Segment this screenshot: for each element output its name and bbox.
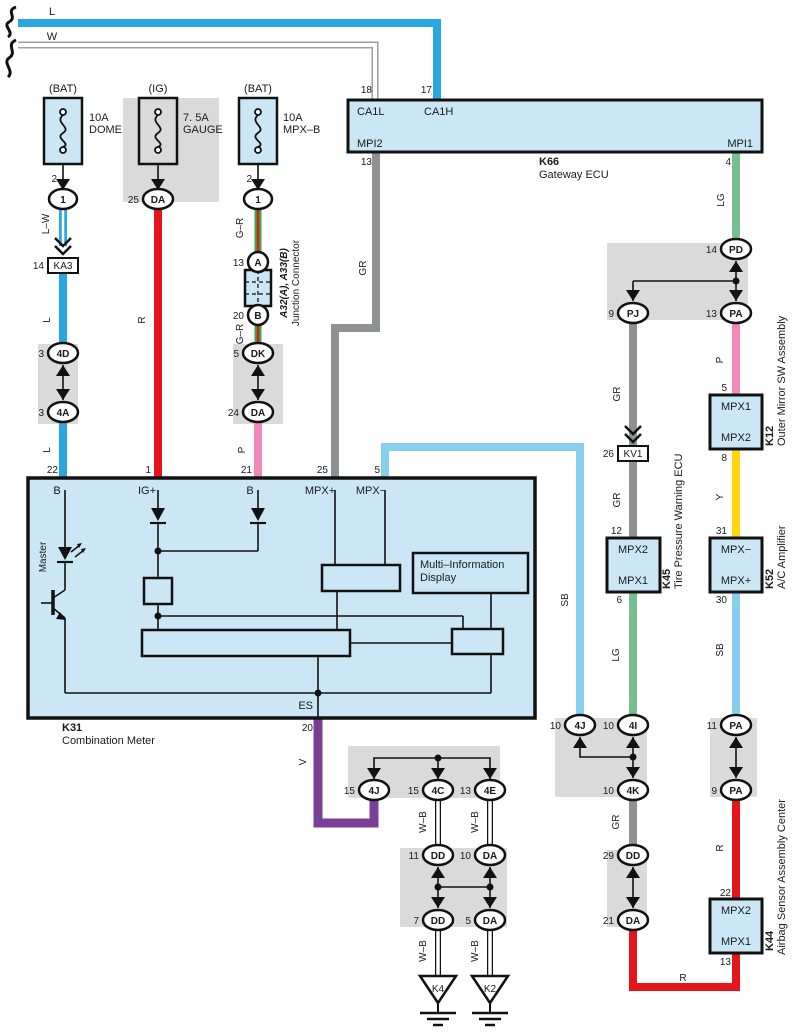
svg-text:4D: 4D bbox=[57, 349, 70, 360]
svg-text:14: 14 bbox=[706, 245, 718, 256]
svg-text:20: 20 bbox=[233, 311, 245, 322]
svg-text:10: 10 bbox=[460, 851, 472, 862]
fuse-name: MPX–B bbox=[283, 124, 320, 136]
pin-number: 6 bbox=[616, 595, 622, 606]
svg-text:B: B bbox=[254, 311, 261, 322]
pin-number: 14 bbox=[33, 261, 45, 272]
ground-symbols: K4 K2 bbox=[420, 976, 508, 1025]
pin-number: 20 bbox=[302, 723, 314, 734]
component-id: K45 bbox=[661, 569, 673, 589]
ground-label: K2 bbox=[484, 984, 497, 995]
relay-code: KV1 bbox=[624, 449, 643, 460]
svg-text:10: 10 bbox=[550, 721, 562, 732]
component-id: A32(A), A33(B) bbox=[279, 248, 290, 319]
pin-label: MPX2 bbox=[721, 432, 751, 444]
svg-text:4E: 4E bbox=[484, 786, 497, 797]
wire-label: P bbox=[715, 356, 726, 363]
fuse-rating: 10A bbox=[89, 112, 109, 124]
wire-label: GR bbox=[612, 493, 623, 508]
pin-number: 17 bbox=[421, 85, 433, 96]
pin-number: 22 bbox=[720, 888, 732, 899]
wire-label: L bbox=[42, 317, 53, 323]
pin-label: MPX1 bbox=[721, 401, 751, 413]
component-id: K44 bbox=[764, 930, 776, 951]
svg-text:DD: DD bbox=[431, 916, 445, 927]
pin-number: 2 bbox=[51, 174, 57, 185]
svg-text:3: 3 bbox=[38, 408, 44, 419]
wire-GR-gateway bbox=[335, 152, 376, 479]
svg-text:DK: DK bbox=[251, 349, 266, 360]
pin-label: IG+ bbox=[138, 485, 156, 497]
fuse-mpxb-box bbox=[239, 98, 277, 164]
svg-text:4A: 4A bbox=[57, 408, 70, 419]
svg-text:4J: 4J bbox=[368, 786, 379, 797]
pin-label: MPI1 bbox=[727, 138, 753, 150]
component-id: K12 bbox=[764, 426, 776, 446]
pin-number: 21 bbox=[241, 465, 253, 476]
wire-label: W–B bbox=[470, 940, 481, 962]
svg-text:1: 1 bbox=[255, 195, 261, 206]
pin-label: B bbox=[53, 485, 60, 497]
pin-number: 2 bbox=[246, 174, 252, 185]
svg-text:4I: 4I bbox=[629, 721, 638, 732]
svg-text:7: 7 bbox=[413, 916, 419, 927]
svg-text:11: 11 bbox=[707, 721, 718, 732]
fuse-head: (BAT) bbox=[244, 83, 272, 95]
component-name: Junction Connector bbox=[291, 239, 302, 326]
component-name: Gateway ECU bbox=[539, 169, 609, 181]
pin-label: MPX2 bbox=[618, 544, 648, 556]
svg-text:15: 15 bbox=[344, 786, 356, 797]
pin-label: MPX+ bbox=[721, 575, 751, 587]
svg-text:PD: PD bbox=[729, 245, 743, 256]
svg-text:5: 5 bbox=[233, 349, 239, 360]
svg-text:9: 9 bbox=[608, 309, 614, 320]
pin-label: MPX1 bbox=[618, 575, 648, 587]
svg-text:3: 3 bbox=[38, 349, 44, 360]
fuse-dome-box bbox=[44, 98, 82, 164]
svg-text:PJ: PJ bbox=[627, 309, 639, 320]
pin-label: CA1H bbox=[424, 106, 453, 118]
wire-label: W–B bbox=[418, 940, 429, 962]
pin-number: 13 bbox=[720, 957, 732, 968]
svg-text:21: 21 bbox=[603, 916, 615, 927]
combination-meter-box bbox=[28, 478, 535, 718]
wire-label: R bbox=[715, 844, 726, 851]
wire-label: L bbox=[42, 447, 53, 453]
svg-text:9: 9 bbox=[711, 786, 717, 797]
fuse-name: GAUGE bbox=[183, 124, 223, 136]
wire-label: SB bbox=[560, 593, 571, 607]
svg-text:4C: 4C bbox=[432, 786, 445, 797]
fuse-gauge-box bbox=[139, 98, 177, 164]
fuse-head: (BAT) bbox=[49, 83, 77, 95]
wire-label: W–B bbox=[418, 811, 429, 833]
pin-number: 30 bbox=[716, 595, 728, 606]
svg-text:25: 25 bbox=[128, 195, 140, 206]
diagram-svg: K4 K2 1 DA25 1 A13 B20 4D3 4A3 DK5 DA24 … bbox=[0, 0, 796, 1032]
svg-text:10: 10 bbox=[603, 721, 615, 732]
component-name: Tire Pressure Warning ECU bbox=[673, 453, 685, 589]
fuse-head: (IG) bbox=[149, 83, 168, 95]
wire-label: Y bbox=[715, 493, 726, 500]
pin-label: MPX+ bbox=[305, 485, 335, 497]
junction-terminal: B20 bbox=[233, 305, 268, 325]
wire-label: G–R bbox=[235, 218, 246, 239]
pin-label: MPX1 bbox=[721, 936, 751, 948]
pin-label: MPX2 bbox=[721, 905, 751, 917]
pin-label: CA1L bbox=[357, 106, 385, 118]
component-name: Airbag Sensor Assembly Center bbox=[776, 799, 788, 955]
wire-label: R bbox=[679, 973, 686, 984]
pin-number: 22 bbox=[47, 465, 59, 476]
wire-label: G–R bbox=[235, 324, 246, 345]
wire-label: V bbox=[298, 758, 309, 765]
pin-number: 12 bbox=[611, 526, 623, 537]
component-id: K66 bbox=[539, 156, 559, 168]
svg-text:DD: DD bbox=[431, 851, 445, 862]
component-id: K52 bbox=[764, 569, 776, 589]
wire-label: GR bbox=[358, 261, 369, 276]
pin-label: MPX− bbox=[356, 485, 386, 497]
svg-text:PA: PA bbox=[729, 786, 742, 797]
pin-label: MPX− bbox=[721, 544, 751, 556]
svg-text:DA: DA bbox=[251, 408, 265, 419]
svg-text:24: 24 bbox=[228, 408, 240, 419]
svg-text:11: 11 bbox=[409, 851, 420, 862]
wire-label: LG bbox=[716, 193, 727, 207]
svg-text:5: 5 bbox=[465, 916, 471, 927]
pin-number: 18 bbox=[361, 85, 373, 96]
pin-label: B bbox=[246, 485, 253, 497]
junction-terminal: A13 bbox=[233, 252, 268, 272]
pin-number: 8 bbox=[721, 453, 727, 464]
wire-label: GR bbox=[611, 815, 622, 830]
svg-text:PA: PA bbox=[729, 721, 742, 732]
fuse-rating: 10A bbox=[283, 112, 303, 124]
component-name: Combination Meter bbox=[62, 735, 155, 747]
component-name: Outer Mirror SW Assembly bbox=[776, 315, 788, 446]
fuse-rating: 7. 5A bbox=[183, 112, 209, 124]
svg-text:DD: DD bbox=[626, 851, 640, 862]
wire-label: L bbox=[49, 6, 55, 18]
svg-text:DA: DA bbox=[151, 195, 165, 206]
wiring-diagram: K4 K2 1 DA25 1 A13 B20 4D3 4A3 DK5 DA24 … bbox=[0, 0, 796, 1032]
component-name: A/C Amplifier bbox=[776, 525, 788, 589]
svg-text:4J: 4J bbox=[574, 721, 585, 732]
display-label: Multi–Information bbox=[420, 559, 504, 571]
svg-text:PA: PA bbox=[729, 309, 742, 320]
pin-number: 25 bbox=[317, 465, 329, 476]
display-label: Display bbox=[420, 572, 457, 584]
wire-label: L–W bbox=[41, 213, 52, 234]
ground-label: K4 bbox=[432, 984, 445, 995]
pin-number: 31 bbox=[716, 526, 728, 537]
wire-label: W–B bbox=[470, 811, 481, 833]
svg-text:4K: 4K bbox=[627, 786, 641, 797]
master-label: Master bbox=[38, 541, 49, 572]
wire-label: R bbox=[137, 316, 148, 323]
pin-label: ES bbox=[298, 700, 313, 712]
svg-text:13: 13 bbox=[233, 258, 245, 269]
relay-code: KA3 bbox=[54, 261, 73, 272]
wire-label: W bbox=[47, 31, 58, 43]
svg-text:DA: DA bbox=[483, 916, 497, 927]
pin-number: 5 bbox=[374, 465, 380, 476]
wire-label: LG bbox=[611, 648, 622, 662]
svg-text:1: 1 bbox=[60, 195, 66, 206]
svg-text:15: 15 bbox=[408, 786, 420, 797]
pin-number: 26 bbox=[603, 449, 615, 460]
fuse-name: DOME bbox=[89, 124, 122, 136]
svg-text:DA: DA bbox=[626, 916, 640, 927]
pin-number: 1 bbox=[145, 465, 151, 476]
connector-oval: 1 bbox=[49, 189, 77, 209]
wire-break-squiggle bbox=[7, 7, 16, 77]
pin-number: 4 bbox=[725, 157, 731, 168]
pin-label: MPI2 bbox=[357, 138, 383, 150]
svg-text:13: 13 bbox=[706, 309, 718, 320]
svg-text:A: A bbox=[254, 258, 261, 269]
component-id: K31 bbox=[62, 722, 82, 734]
meter-internals bbox=[28, 478, 535, 718]
wire-label: SB bbox=[715, 643, 726, 657]
splice-chevrons bbox=[55, 238, 641, 442]
connector-oval: 1 bbox=[244, 189, 272, 209]
pin-number: 13 bbox=[361, 157, 373, 168]
wire-label: GR bbox=[612, 387, 623, 402]
svg-text:13: 13 bbox=[460, 786, 472, 797]
svg-text:29: 29 bbox=[603, 851, 615, 862]
svg-text:DA: DA bbox=[483, 851, 497, 862]
pin-number: 5 bbox=[721, 383, 727, 394]
wire-label: P bbox=[237, 446, 248, 453]
svg-text:10: 10 bbox=[603, 786, 615, 797]
gateway-ecu-box bbox=[348, 100, 762, 152]
